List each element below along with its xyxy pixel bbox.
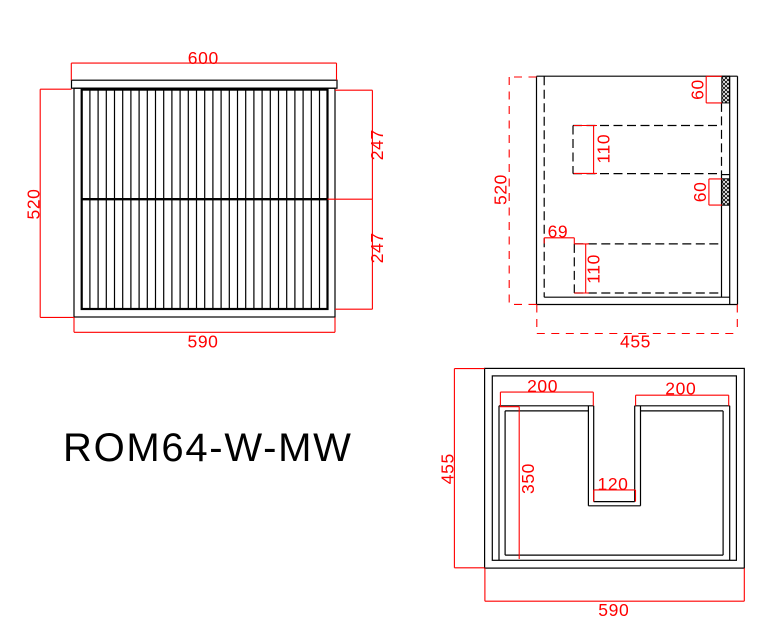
svg-text:590: 590 xyxy=(188,332,219,352)
svg-text:520: 520 xyxy=(490,174,510,205)
svg-text:ROM64-W-MW: ROM64-W-MW xyxy=(63,426,353,470)
svg-text:590: 590 xyxy=(598,600,629,620)
svg-text:60: 60 xyxy=(690,182,710,203)
svg-text:350: 350 xyxy=(518,463,538,494)
svg-text:120: 120 xyxy=(598,474,629,494)
svg-text:110: 110 xyxy=(583,254,603,284)
svg-text:247: 247 xyxy=(367,232,387,263)
svg-text:60: 60 xyxy=(687,79,707,100)
svg-text:200: 200 xyxy=(527,376,558,396)
svg-text:600: 600 xyxy=(188,48,219,68)
svg-text:520: 520 xyxy=(24,189,44,220)
svg-text:455: 455 xyxy=(620,331,651,351)
svg-text:69: 69 xyxy=(548,221,569,241)
svg-text:455: 455 xyxy=(437,453,457,484)
svg-text:247: 247 xyxy=(367,129,387,160)
svg-text:110: 110 xyxy=(593,134,613,164)
svg-text:200: 200 xyxy=(665,379,696,399)
